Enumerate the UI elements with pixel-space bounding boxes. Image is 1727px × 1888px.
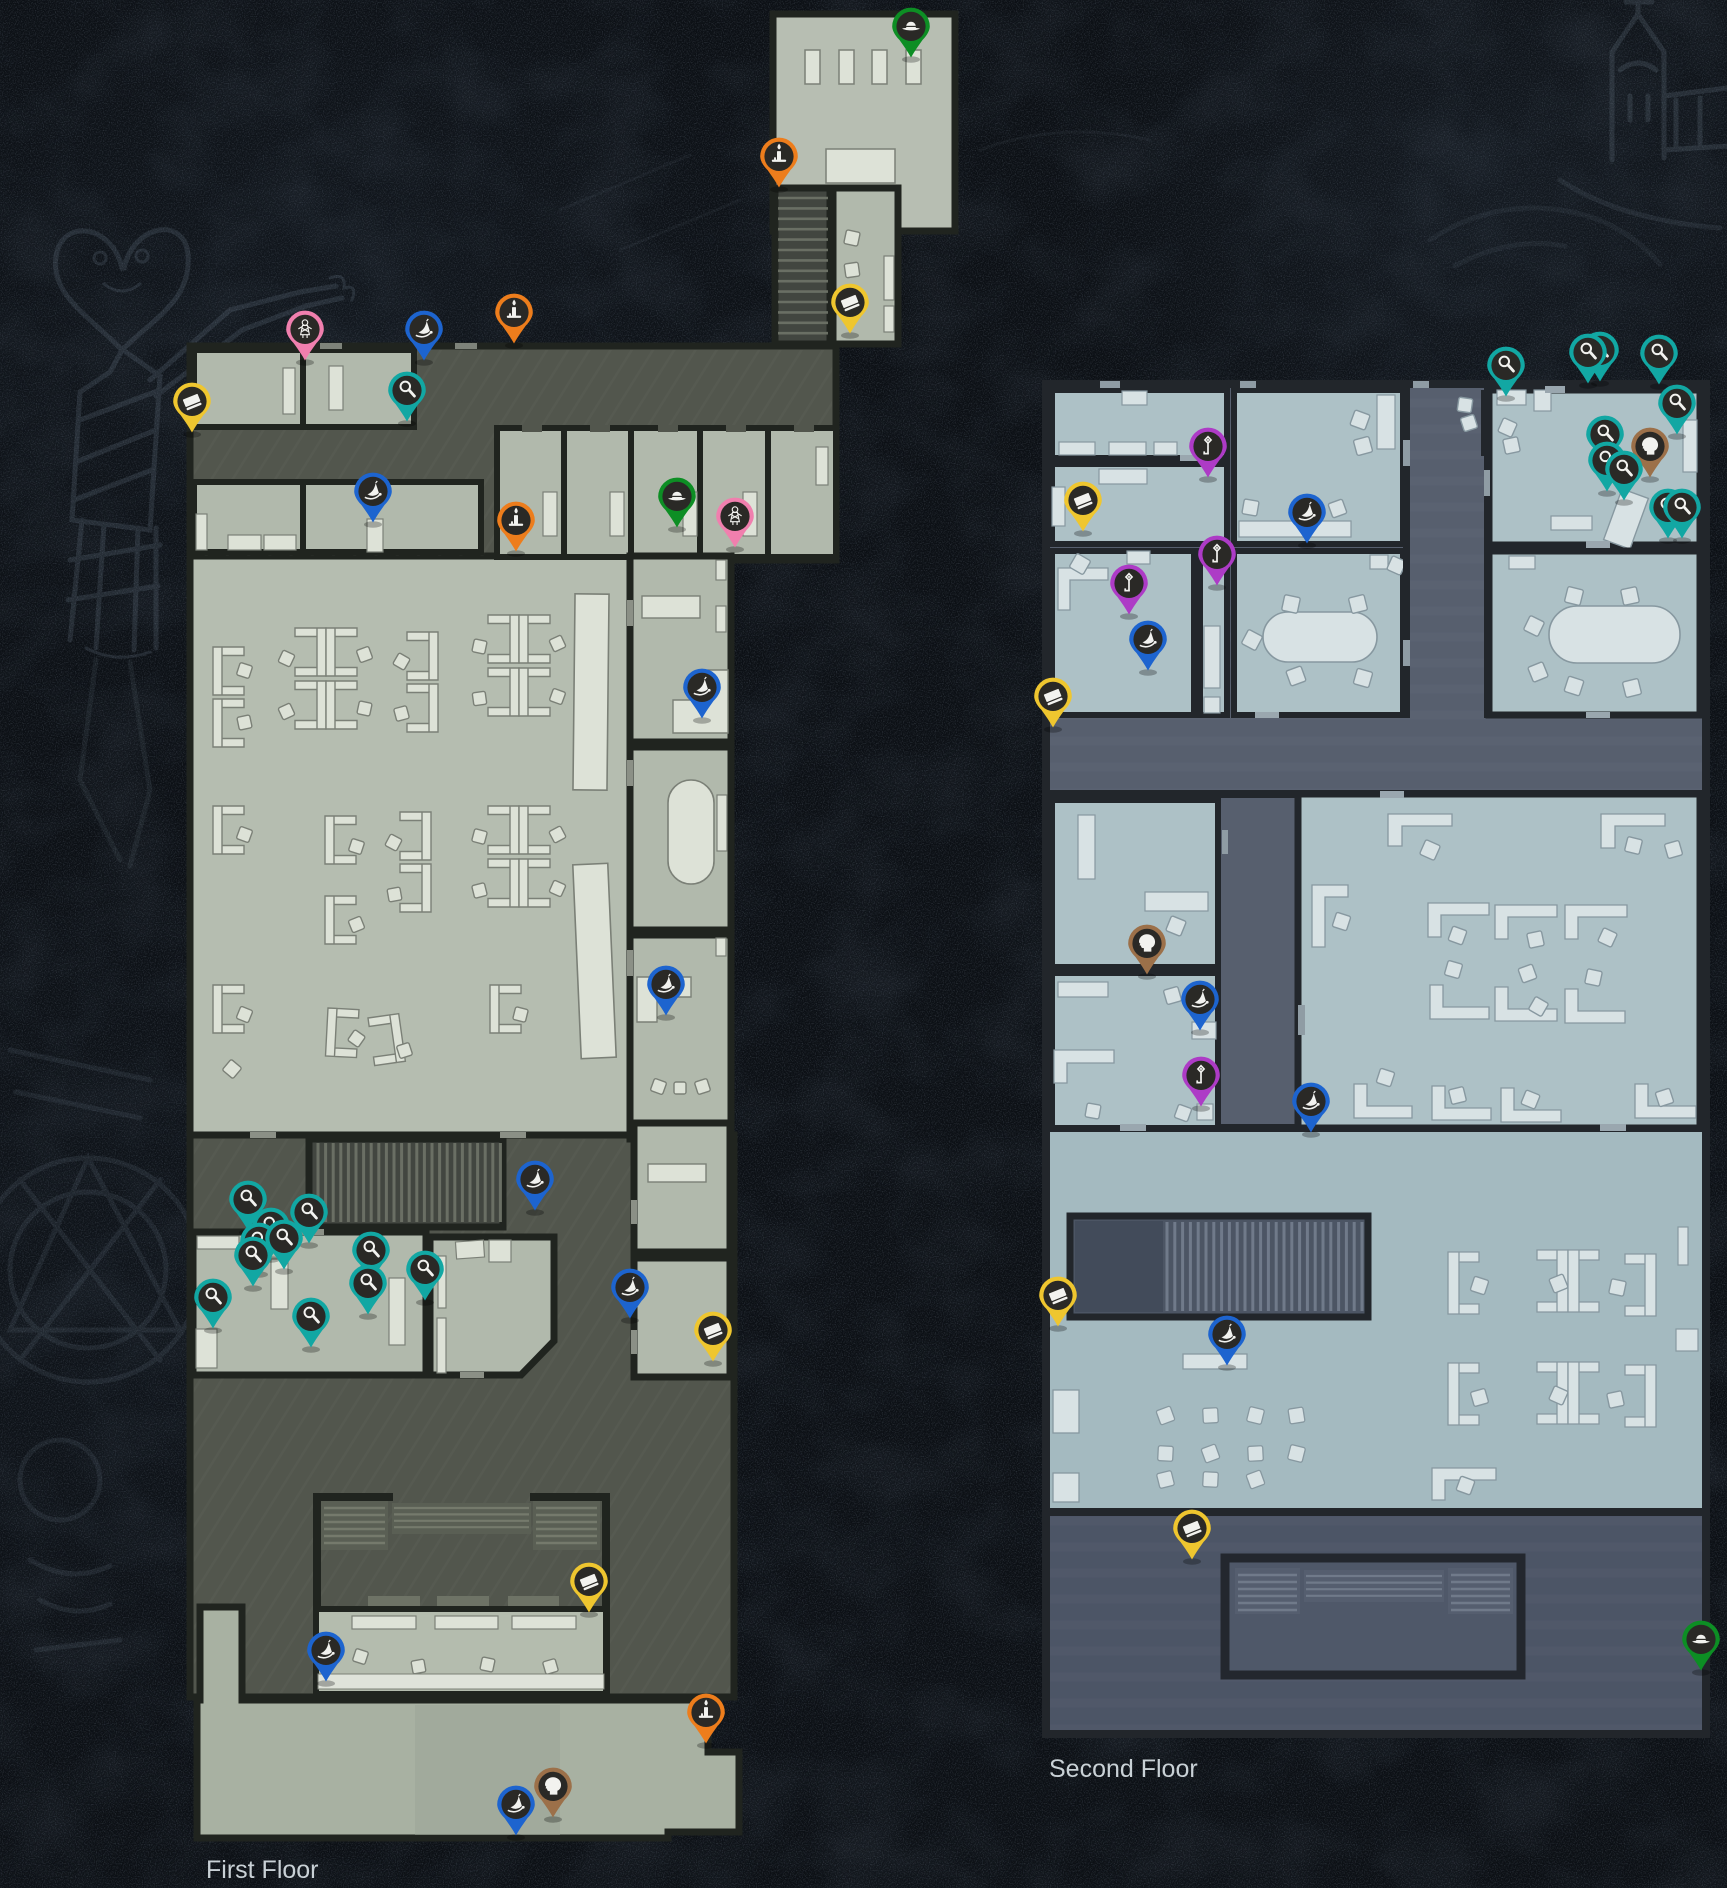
svg-text:Second Floor: Second Floor: [1049, 1755, 1198, 1783]
svg-text:First Floor: First Floor: [206, 1856, 319, 1884]
